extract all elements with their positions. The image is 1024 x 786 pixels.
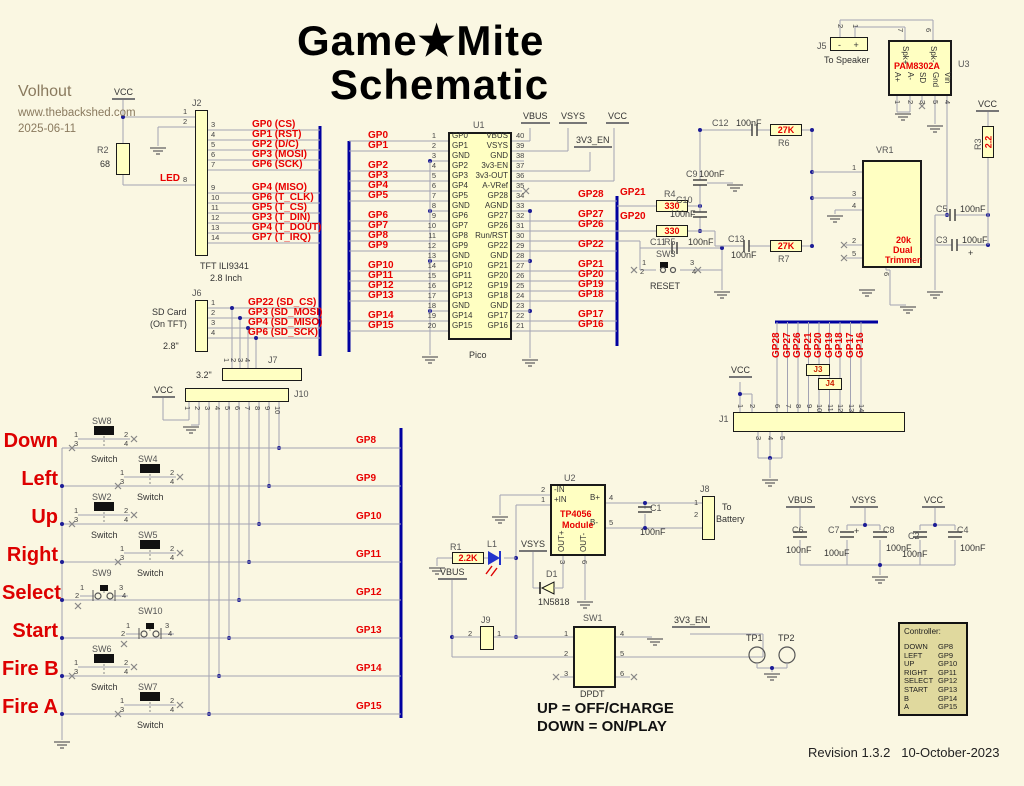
switch-ref-SW8: SW8: [92, 417, 112, 426]
j6-connector: [195, 300, 208, 352]
pico-pin-r36: 36: [516, 172, 524, 180]
button-net-GP8: GP8: [356, 436, 376, 446]
d1-ref: D1: [546, 570, 558, 579]
SW5-caption: Switch: [137, 569, 164, 578]
c1-val: 100nF: [640, 528, 666, 537]
led-net: LED: [160, 174, 180, 184]
pico-pin-r27: 27: [516, 262, 524, 270]
u2-pinlabel-+IN: +IN: [554, 496, 567, 504]
u3-pinlabel-A+: A+: [893, 72, 901, 82]
button-net-GP11: GP11: [356, 550, 381, 560]
j1-pin-7: 7: [784, 404, 792, 408]
j10-ref: J10: [294, 390, 309, 399]
j1-pin-11: 11: [826, 404, 834, 412]
button-net-GP10: GP10: [356, 512, 382, 522]
vcc-cb: VCC: [922, 496, 945, 508]
sd-size2: 3.2": [196, 371, 212, 380]
sw1-pin-2: 2: [564, 650, 568, 658]
pico-pin-r33: 33: [516, 202, 524, 210]
pico-pin-l11: 11: [420, 232, 436, 240]
controller-button-name: A: [904, 703, 938, 712]
button-label-GP11: Right: [2, 545, 58, 565]
vbus-l: VBUS: [438, 568, 467, 580]
sw1-cap: DPDT: [580, 690, 605, 699]
vsys-d1: VSYS: [519, 540, 547, 552]
u2-pin-3: 3: [559, 560, 567, 564]
j10-pin-7: 7: [244, 406, 252, 410]
j10-pin-10: 10: [274, 406, 282, 414]
SW8-p4: 4: [124, 440, 128, 448]
vr1-val1: 20k: [896, 236, 911, 245]
pico-net-GP28: GP28: [578, 190, 604, 200]
u3-pin-5: 5: [932, 100, 940, 104]
pico-net-GP16: GP16: [578, 320, 604, 330]
vr1-ref: VR1: [876, 146, 894, 155]
pico-name-r31: GP26: [464, 222, 508, 230]
j8-p2: 2: [694, 511, 698, 519]
c9-ref: C9: [686, 170, 698, 179]
j2-net-7: GP6 (SCK): [252, 160, 303, 170]
u3-pin-7: 7: [897, 28, 905, 32]
sd-cap2: (On TFT): [150, 320, 187, 329]
vr1-p6: 6: [883, 272, 891, 276]
switch-ref-SW9: SW9: [92, 569, 112, 578]
j1-net-GP27: GP27: [783, 332, 793, 358]
r1-body: 2.2K: [452, 552, 484, 564]
c9-val: 100nF: [699, 170, 725, 179]
u1-ref: U1: [473, 121, 485, 130]
sd-size1: 2.8": [163, 342, 179, 351]
author-date: 2025-06-11: [18, 124, 76, 136]
button-net-GP14: GP14: [356, 664, 382, 674]
j1-pin-12: 12: [837, 404, 845, 412]
j1-net-GP20: GP20: [814, 332, 824, 358]
SW7-caption: Switch: [137, 721, 164, 730]
pico-pin-r32: 32: [516, 212, 524, 220]
c7-val: 100uF: [824, 549, 850, 558]
tp2-ref: TP2: [778, 634, 795, 643]
j1-net-GP21: GP21: [804, 332, 814, 358]
pico-name-r30: Run/RST: [464, 232, 508, 240]
c12-ref: C12: [712, 119, 729, 128]
j2-pin-13: 13: [211, 224, 219, 232]
u2-pinlabel-OUT+: OUT+: [558, 530, 566, 552]
en-sw1: 3V3_EN: [672, 616, 710, 628]
j5-p1: 1: [852, 24, 860, 28]
sw3-p1: 1: [642, 259, 646, 267]
j1-ref: J1: [719, 415, 729, 424]
pico-pin-l15: 15: [420, 272, 436, 280]
page-title-line1: Game★Mite: [297, 20, 544, 62]
SW8-p3: 3: [74, 440, 78, 448]
pico-pin-r30: 30: [516, 232, 524, 240]
j1-pinb-3: 3: [755, 436, 763, 440]
pico-pin-l7: 7: [420, 192, 436, 200]
pico-name-r40: VBUS: [464, 132, 508, 140]
pico-name-r37: 3v3-EN: [464, 162, 508, 170]
vr1-trimmer: [862, 160, 922, 268]
u3-pinlabel-Spk+: Spk+: [901, 46, 909, 64]
pico-name-r38: GND: [464, 152, 508, 160]
gp21-net: GP21: [620, 188, 646, 198]
pico-pin-l9: 9: [420, 212, 436, 220]
pico-name-r34: GP28: [464, 192, 508, 200]
pico-net-GP13: GP13: [368, 291, 394, 301]
tft-cap2: 2.8 Inch: [210, 274, 242, 283]
tp1-ref: TP1: [746, 634, 763, 643]
pico-pin-r35: 35: [516, 182, 524, 190]
controller-button-name: START: [904, 686, 938, 695]
sw1-pin-1: 1: [564, 630, 568, 638]
pico-pin-l8: 8: [420, 202, 436, 210]
r6-body-value: 27K: [778, 125, 795, 135]
j2-ref: J2: [192, 99, 202, 108]
pico-pin-l16: 16: [420, 282, 436, 290]
SW5-p3: 3: [120, 554, 124, 562]
u1-cap: Pico: [469, 351, 487, 360]
SW6-p2: 2: [124, 659, 128, 667]
j7-pin-4: 4: [244, 358, 252, 362]
j2-pin-8: 8: [183, 176, 187, 184]
j1-net-GP19: GP19: [825, 332, 835, 358]
l1-ref: L1: [487, 540, 497, 549]
r2-body: [116, 143, 130, 175]
SW8-p1: 1: [74, 431, 78, 439]
c3-plus: +: [968, 249, 973, 258]
switch-ref-SW5: SW5: [138, 531, 158, 540]
j2-pin-14: 14: [211, 234, 219, 242]
u3-pin-4: 4: [944, 100, 952, 104]
j2-pin-2: 2: [183, 118, 187, 126]
SW7-p1: 1: [120, 697, 124, 705]
button-label-GP10: Up: [2, 507, 58, 527]
pico-pin-l18: 18: [420, 302, 436, 310]
j5-cap: To Speaker: [824, 56, 870, 65]
c7-ref: C7: [828, 526, 840, 535]
pico-net-GP9: GP9: [368, 241, 388, 251]
page-title-line2: Schematic: [330, 64, 549, 106]
controller-table-rows: DOWNGP8LEFTGP9UPGP10RIGHTGP11SELECTGP12S…: [904, 643, 962, 712]
j6-pin-2: 2: [211, 309, 215, 317]
vsys-pico: VSYS: [559, 112, 587, 124]
SW6-p1: 1: [74, 659, 78, 667]
SW6-p4: 4: [124, 668, 128, 676]
pico-pin-r37: 37: [516, 162, 524, 170]
sw1-pin-4: 4: [620, 630, 624, 638]
u2-pin-6: 6: [581, 560, 589, 564]
j1-pinl-1: 1: [737, 404, 745, 408]
vsys-cb: VSYS: [850, 496, 878, 508]
j9-ref: J9: [481, 616, 491, 625]
r4-ref: R4: [664, 190, 676, 199]
r5-body: 330: [656, 225, 688, 237]
sw3-p2: 2: [640, 268, 644, 276]
sw1-pin-3: 3: [564, 670, 568, 678]
j6-pin-4: 4: [211, 329, 215, 337]
SW8-p2: 2: [124, 431, 128, 439]
SW9-p4: 4: [122, 592, 126, 600]
vr1-val2: Dual: [893, 246, 913, 255]
j10-connector: [185, 388, 289, 402]
r3-body: 2.2: [982, 126, 994, 158]
pico-pin-l3: 3: [420, 152, 436, 160]
u3-pinlabel-SD: SD: [918, 72, 926, 83]
j1-pin-6: 6: [774, 404, 782, 408]
c5-ref: C5: [936, 205, 948, 214]
pico-pin-l1: 1: [420, 132, 436, 140]
SW5-p2: 2: [170, 545, 174, 553]
sw3-p4: 4: [692, 268, 696, 276]
j6-pin-1: 1: [211, 299, 215, 307]
r7-body-value: 27K: [778, 241, 795, 251]
sw3-ref: SW3: [656, 250, 676, 259]
pico-pin-r31: 31: [516, 222, 524, 230]
pico-name-r21: GP16: [464, 322, 508, 330]
pico-name-r36: 3v3-OUT: [464, 172, 508, 180]
u2-pin-1: 1: [541, 496, 545, 504]
vr1-val3: Trimmer: [885, 256, 921, 265]
pico-net-GP15: GP15: [368, 321, 394, 331]
SW9-p1: 1: [80, 584, 84, 592]
u3-pinlabel-A-: A-: [906, 72, 914, 80]
pico-pin-r40: 40: [516, 132, 524, 140]
button-label-GP9: Left: [2, 469, 58, 489]
j1-pin-8: 8: [795, 404, 803, 408]
pico-pin-l19: 19: [420, 312, 436, 320]
u3-pinlabel-Vin: Vin: [943, 72, 951, 83]
j5-p2: 2: [837, 24, 845, 28]
j5-pol: - +: [838, 41, 859, 50]
u2-part2: Module: [562, 521, 594, 530]
schematic-canvas: Game★Mite Schematic Volhout www.thebacks…: [0, 0, 1024, 786]
vr1-p4: 4: [852, 202, 856, 210]
c2-ref: C2: [908, 532, 920, 541]
pico-pin-l5: 5: [420, 172, 436, 180]
button-label-GP15: Fire A: [2, 697, 58, 717]
button-net-GP12: GP12: [356, 588, 382, 598]
j8-p1: 1: [694, 499, 698, 507]
power-note-up: UP = OFF/CHARGE: [537, 701, 674, 716]
pico-name-r39: VSYS: [464, 142, 508, 150]
revision-text: Revision 1.3.2 10-October-2023: [808, 746, 1000, 759]
switch-ref-SW2: SW2: [92, 493, 112, 502]
SW4-p3: 3: [120, 478, 124, 486]
r1-ref: R1: [450, 543, 462, 552]
r5-body-value: 330: [664, 226, 679, 236]
button-net-GP13: GP13: [356, 626, 382, 636]
SW4-p4: 4: [170, 478, 174, 486]
button-label-GP14: Fire B: [2, 659, 58, 679]
pico-pin-r34: 34: [516, 192, 524, 200]
sd-cap1: SD Card: [152, 308, 187, 317]
SW4-p2: 2: [170, 469, 174, 477]
SW2-p4: 4: [124, 516, 128, 524]
SW4-p1: 1: [120, 469, 124, 477]
j8-ref: J8: [700, 485, 710, 494]
j1-pin-10: 10: [816, 404, 824, 412]
j1-net-GP28: GP28: [772, 332, 782, 358]
j6-ref: J6: [192, 289, 202, 298]
j1-pin-13: 13: [847, 404, 855, 412]
pico-pin-r38: 38: [516, 152, 524, 160]
c13-val: 100nF: [731, 251, 757, 260]
vr1-p5: 5: [852, 250, 856, 258]
vcc-j10: VCC: [152, 386, 175, 398]
j9-connector: [480, 626, 494, 650]
pico-pin-l12: 12: [420, 242, 436, 250]
pico-net-GP1: GP1: [368, 141, 388, 151]
u2-ref: U2: [564, 474, 576, 483]
c6-ref: C6: [792, 526, 804, 535]
j1-net-GP18: GP18: [835, 332, 845, 358]
c10-val: 100nF: [670, 210, 696, 219]
SW7-p2: 2: [170, 697, 174, 705]
c4-val: 100nF: [960, 544, 986, 553]
button-label-GP12: Select: [2, 583, 58, 603]
j1-pin-14: 14: [858, 404, 866, 412]
j2-pin-4: 4: [211, 131, 215, 139]
j10-pin-5: 5: [224, 406, 232, 410]
pico-pin-l20: 20: [420, 322, 436, 330]
j1-net-GP26: GP26: [793, 332, 803, 358]
pico-name-r27: GP21: [464, 262, 508, 270]
pico-pin-l10: 10: [420, 222, 436, 230]
u2-pinlabel-OUT-: OUT-: [580, 533, 588, 552]
u2-pinlabel--IN: -IN: [554, 486, 565, 494]
j10-pin-8: 8: [254, 406, 262, 410]
pico-pin-l6: 6: [420, 182, 436, 190]
c11-ref: C11: [650, 238, 666, 247]
j8-cap1: To: [722, 503, 732, 512]
switch-ref-SW4: SW4: [138, 455, 158, 464]
j8-connector: [702, 496, 715, 540]
vbus-cb: VBUS: [786, 496, 815, 508]
SW5-p1: 1: [120, 545, 124, 553]
SW4-caption: Switch: [137, 493, 164, 502]
c3-val: 100uF: [962, 236, 988, 245]
author-website: www.thebackshed.com: [18, 108, 136, 120]
c4-ref: C4: [957, 526, 969, 535]
tft-cap1: TFT ILI9341: [200, 262, 249, 271]
j2-pin-6: 6: [211, 151, 215, 159]
c1-ref: C1: [650, 504, 662, 513]
c11-val: 100nF: [688, 238, 714, 247]
SW2-p2: 2: [124, 507, 128, 515]
j2-pin-1: 1: [183, 108, 187, 116]
pico-name-r32: GP27: [464, 212, 508, 220]
pico-name-r28: GND: [464, 252, 508, 260]
SW5-p4: 4: [170, 554, 174, 562]
SW7-p4: 4: [170, 706, 174, 714]
j2-connector: [195, 110, 208, 256]
c7-plus: +: [854, 527, 859, 536]
pico-pin-l13: 13: [420, 252, 436, 260]
SW2-p3: 3: [74, 516, 78, 524]
pico-net-GP22: GP22: [578, 240, 604, 250]
j9-p1: 1: [497, 630, 501, 638]
u2-pin-4: 4: [609, 494, 613, 502]
SW6-p3: 3: [74, 668, 78, 676]
j10-pin-3: 3: [204, 406, 212, 410]
c2-val: 100nF: [902, 550, 928, 559]
pico-net-GP18: GP18: [578, 290, 604, 300]
pico-pin-r39: 39: [516, 142, 524, 150]
SW8-caption: Switch: [91, 455, 118, 464]
vbus-pico: VBUS: [521, 112, 550, 124]
c5-val: 100nF: [960, 205, 986, 214]
controller-gpio: GP15: [938, 703, 957, 712]
SW10-p4: 4: [168, 630, 172, 638]
u2-pin-5: 5: [609, 519, 613, 527]
j8-cap2: Battery: [716, 515, 745, 524]
button-label-GP8: Down: [2, 431, 58, 451]
j2-pin-9: 9: [211, 184, 215, 192]
u3-ref: U3: [958, 60, 970, 69]
j2-pin-12: 12: [211, 214, 219, 222]
pico-name-r26: GP20: [464, 272, 508, 280]
controller-row-a: AGP15: [904, 703, 962, 712]
SW2-p1: 1: [74, 507, 78, 515]
jumper-j3: J3: [806, 364, 830, 376]
switch-ref-SW7: SW7: [138, 683, 158, 692]
switch-ref-SW10: SW10: [138, 607, 163, 616]
pico-pin-r22: 22: [516, 312, 524, 320]
c6-val: 100nF: [786, 546, 812, 555]
pico-pin-r29: 29: [516, 242, 524, 250]
j1-pinb-5: 5: [779, 436, 787, 440]
pico-pin-r23: 23: [516, 302, 524, 310]
sw1-pin-5: 5: [620, 650, 624, 658]
pico-pin-r28: 28: [516, 252, 524, 260]
pico-name-r23: GND: [464, 302, 508, 310]
SW10-p2: 2: [121, 630, 125, 638]
c10-ref: C10: [676, 196, 693, 205]
j2-net-14: GP7 (T_IRQ): [252, 233, 311, 243]
pico-pin-l14: 14: [420, 262, 436, 270]
j2-pin-5: 5: [211, 141, 215, 149]
u3-pin-3: 3: [919, 100, 927, 104]
button-label-GP13: Start: [2, 621, 58, 641]
pico-name-r35: A-VRef: [464, 182, 508, 190]
vcc-j1: VCC: [729, 366, 752, 378]
pico-pin-r21: 21: [516, 322, 524, 330]
sw1-dpdt-switch: [573, 626, 616, 688]
r6-body: 27K: [770, 124, 802, 136]
u3-pin-1: 1: [894, 100, 902, 104]
c3-ref: C3: [936, 236, 948, 245]
SW7-p3: 3: [120, 706, 124, 714]
j2-pin-11: 11: [211, 204, 219, 212]
pico-name-r25: GP19: [464, 282, 508, 290]
pico-pin-r26: 26: [516, 272, 524, 280]
SW2-caption: Switch: [91, 531, 118, 540]
u3-pin-2: 2: [907, 100, 915, 104]
u2-part1: TP4056: [560, 510, 592, 519]
pico-name-r29: GP22: [464, 242, 508, 250]
author-name: Volhout: [18, 84, 71, 100]
r1-body-value: 2.2K: [458, 553, 477, 563]
pico-net-GP5: GP5: [368, 191, 388, 201]
pico-net-GP26: GP26: [578, 220, 604, 230]
u3-pinlabel-Spk-: Spk-: [929, 46, 937, 62]
pico-pin-r24: 24: [516, 292, 524, 300]
r3-body-value: 2.2: [983, 136, 993, 149]
j9-p2: 2: [468, 630, 472, 638]
d1-val: 1N5818: [538, 598, 570, 607]
sw1-ref: SW1: [583, 614, 603, 623]
vr1-p2: 2: [852, 237, 856, 245]
c12-val: 100nF: [736, 119, 762, 128]
